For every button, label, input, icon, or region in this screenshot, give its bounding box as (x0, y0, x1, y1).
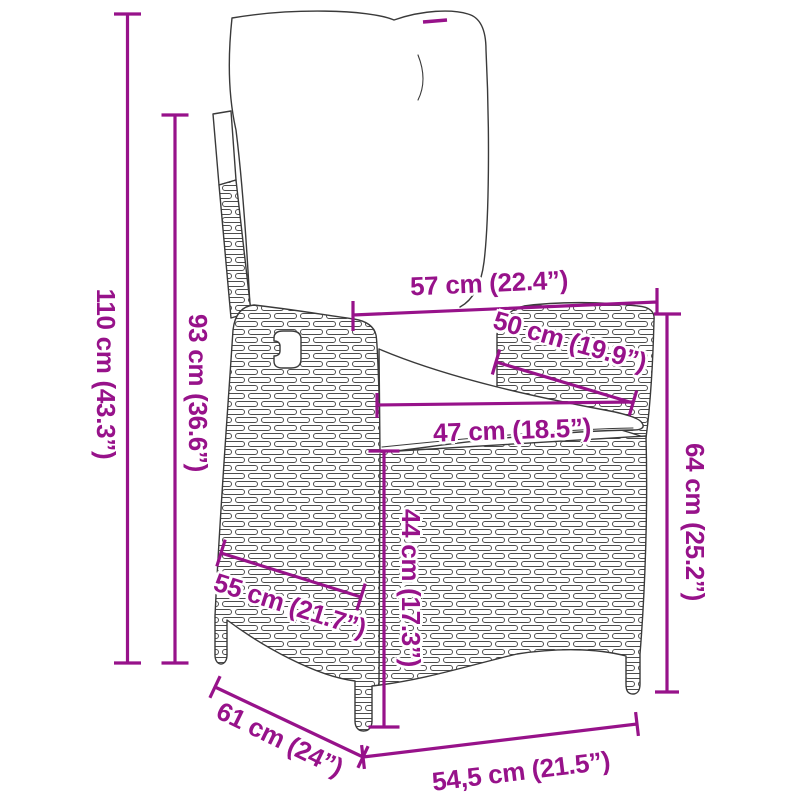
dimension-diagram: 110 cm (43.3”) 93 cm (36.6”) 57 cm (22.4… (0, 0, 800, 800)
dim-label-110cm: 110 cm (43.3”) (93, 289, 119, 460)
dim-label-47cm: 47 cm (18.5”) (433, 414, 592, 445)
height-reference-tick (423, 20, 447, 22)
dim-label-57cm: 57 cm (22.4”) (410, 267, 569, 300)
back-cushion (229, 11, 488, 351)
dim-label-44cm: 44 cm (17.3”) (398, 509, 424, 667)
dim-label-64cm: 64 cm (25.2”) (682, 443, 708, 601)
dim-label-93cm: 93 cm (36.6”) (185, 314, 211, 472)
backrest-frame-cap (213, 111, 236, 185)
dim-line-64cm (654, 314, 681, 692)
